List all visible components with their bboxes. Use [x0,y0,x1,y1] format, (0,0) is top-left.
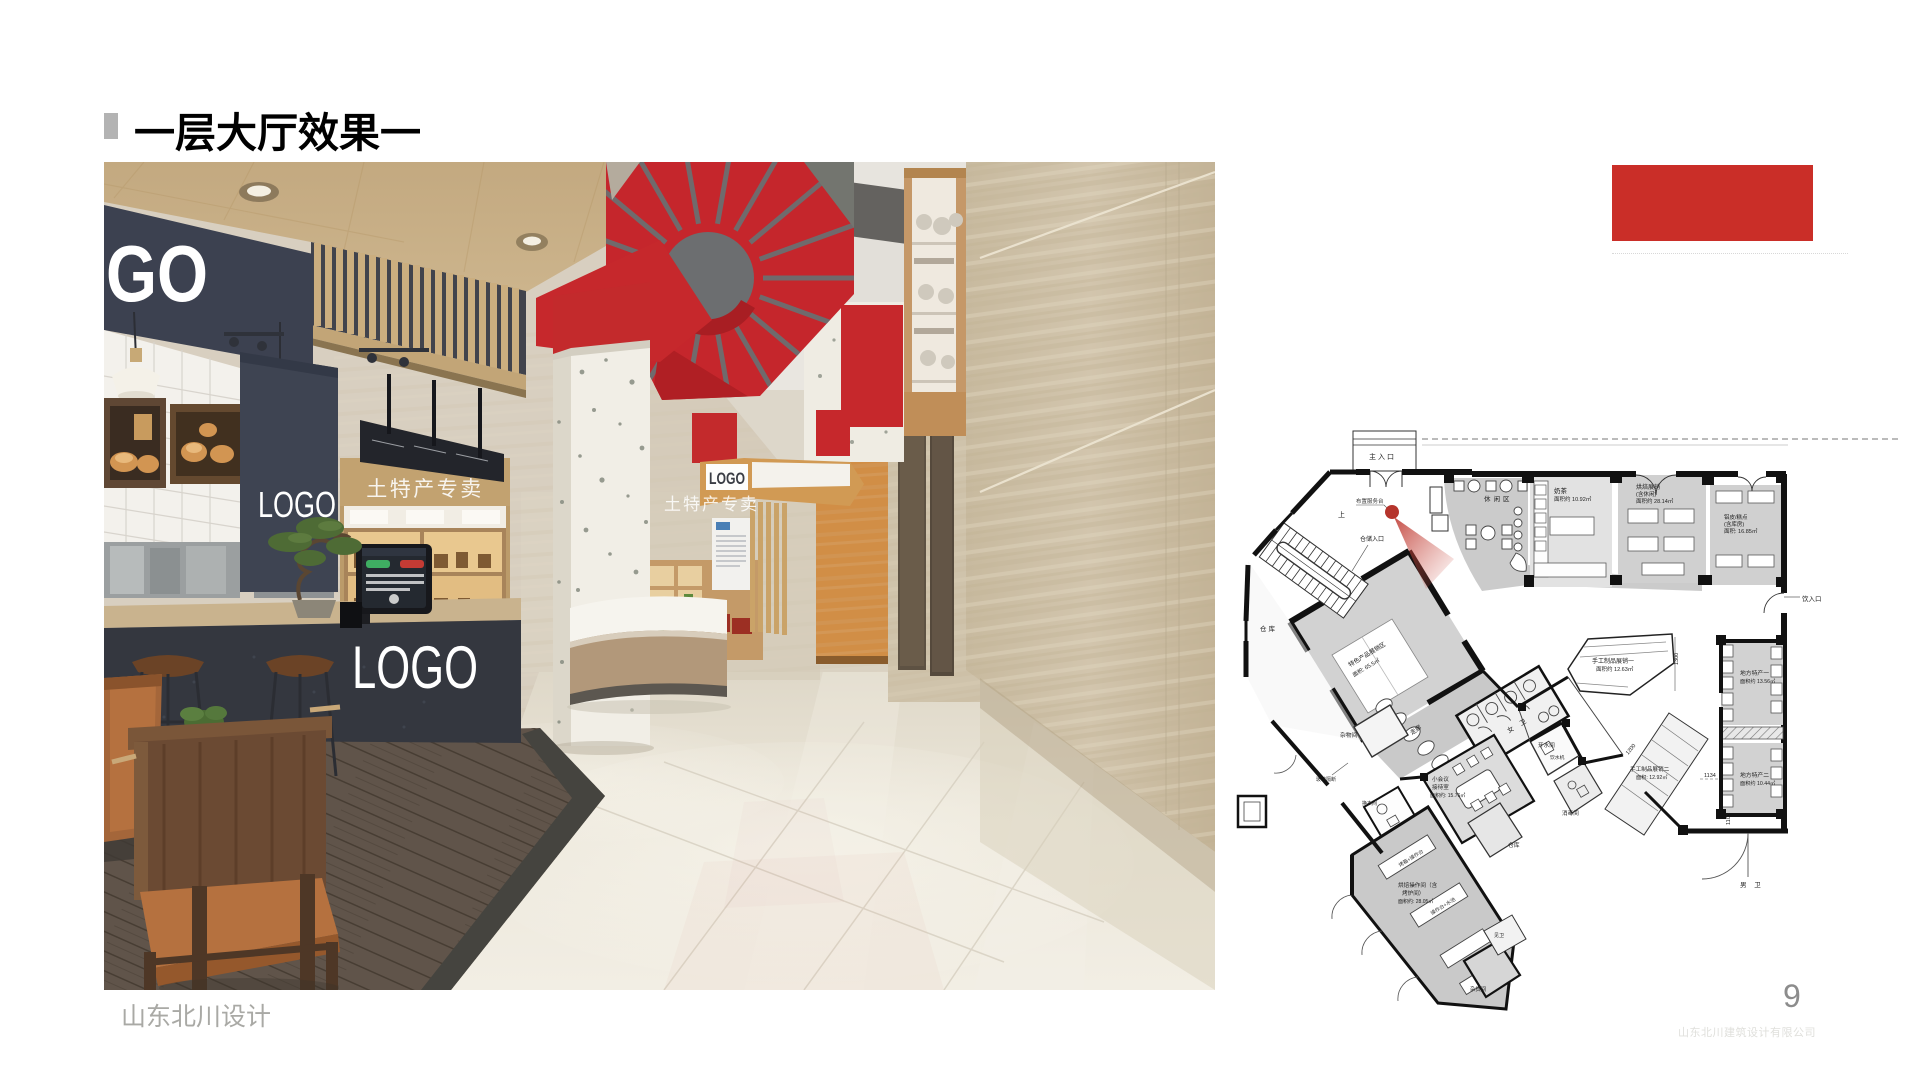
svg-text:男 卫: 男 卫 [1740,881,1764,889]
svg-text:主入口: 主入口 [1369,452,1396,461]
svg-text:面积约 12.63㎡: 面积约 12.63㎡ [1596,665,1634,673]
svg-text:饮水机: 饮水机 [1550,754,1565,761]
svg-text:面积约: 15.76㎡: 面积约: 15.76㎡ [1430,792,1465,799]
svg-text:(含休闲): (含休闲) [1636,490,1656,498]
svg-text:土特产专卖: 土特产专卖 [366,478,484,501]
svg-text:地方特产二: 地方特产二 [1740,771,1769,779]
svg-text:见卫: 见卫 [1494,933,1504,939]
svg-text:换衣间: 换衣间 [1362,800,1377,807]
svg-text:开水间: 开水间 [1538,741,1555,749]
svg-text:LOGO: LOGO [709,469,745,488]
svg-text:杂货间: 杂货间 [1470,985,1486,993]
svg-text:仓库: 仓库 [1260,624,1277,633]
svg-text:1134: 1134 [1704,773,1716,779]
svg-text:上: 上 [1338,510,1345,519]
svg-text:GO: GO [106,229,208,318]
svg-text:地方特产一: 地方特产一 [1740,669,1769,677]
svg-text:小会议: 小会议 [1432,775,1449,783]
svg-text:休闲区: 休闲区 [1484,494,1513,503]
svg-text:1200: 1200 [1625,743,1637,756]
svg-text:LOGO: LOGO [352,634,478,701]
svg-text:土特产专卖: 土特产专卖 [664,495,759,514]
svg-text:仓储入口: 仓储入口 [1360,535,1384,543]
svg-text:面积约: 28.05㎡: 面积约: 28.05㎡ [1398,898,1433,905]
svg-text:烘焙操作间（含: 烘焙操作间（含 [1398,881,1438,889]
svg-text:饮入口: 饮入口 [1802,594,1822,603]
svg-text:消毒间: 消毒间 [1562,809,1579,817]
svg-text:烤炉间）: 烤炉间） [1402,889,1424,897]
svg-text:手工制品展销一: 手工制品展销一 [1592,657,1634,665]
svg-text:杂物间: 杂物间 [1340,731,1358,739]
svg-text:手工制品展销二: 手工制品展销二 [1630,765,1670,773]
svg-text:面积: 16.85㎡: 面积: 16.85㎡ [1724,527,1758,535]
svg-text:面积约 10.44㎡: 面积约 10.44㎡ [1740,779,1776,787]
svg-text:接待室: 接待室 [1432,783,1449,791]
svg-text:面积约 13.56㎡: 面积约 13.56㎡ [1740,677,1776,685]
svg-text:面积约 28.14㎡: 面积约 28.14㎡ [1636,497,1674,505]
svg-text:(含库房): (含库房) [1724,520,1744,528]
svg-text:铝皮/糕点: 铝皮/糕点 [1724,513,1748,521]
svg-text:仓库: 仓库 [1508,841,1520,849]
svg-text:布置服务台: 布置服务台 [1356,497,1384,505]
svg-text:面积约 10.92㎡: 面积约 10.92㎡ [1554,495,1592,503]
svg-text:面积: 12.92㎡: 面积: 12.92㎡ [1636,773,1668,781]
svg-text:奶茶: 奶茶 [1554,486,1568,495]
svg-text:1103: 1103 [1726,813,1732,825]
